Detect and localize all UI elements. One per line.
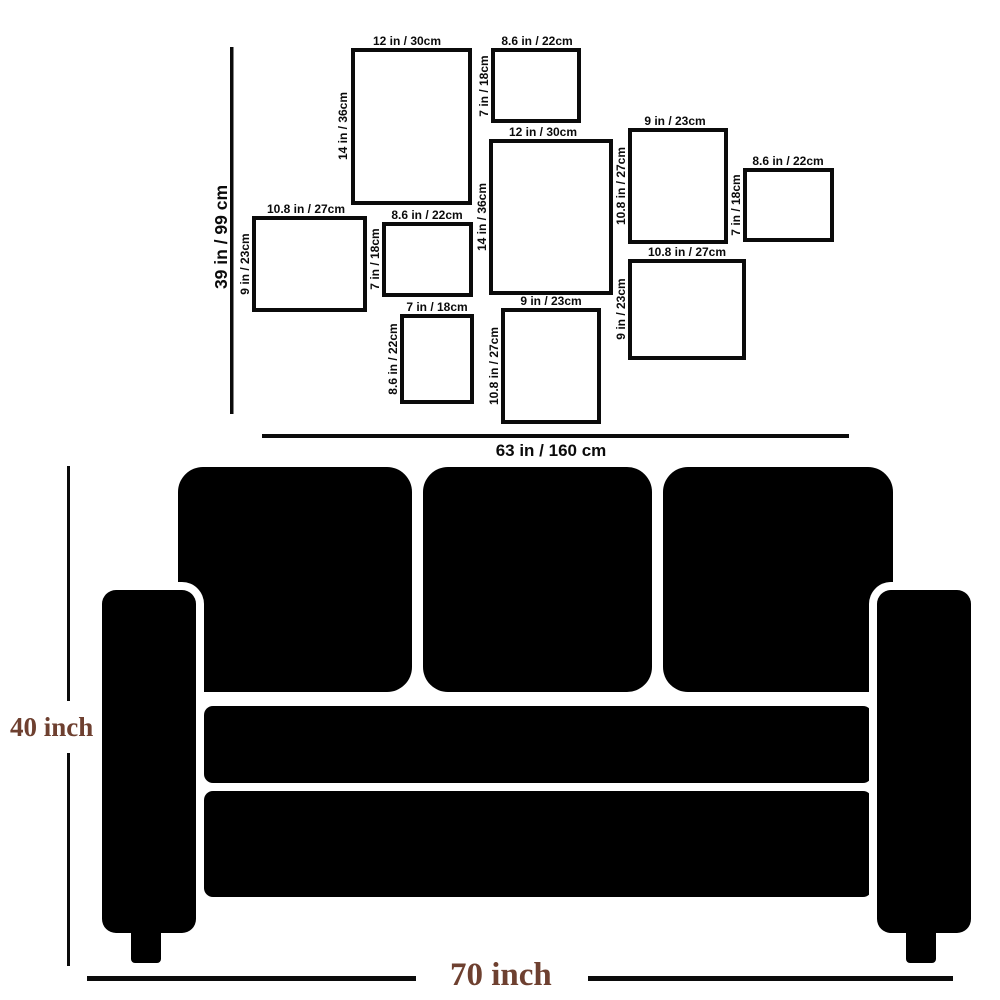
svg-text:7 in / 18cm: 7 in / 18cm [729,174,743,235]
svg-text:8.6 in / 22cm: 8.6 in / 22cm [501,34,572,48]
svg-text:10.8 in / 27cm: 10.8 in / 27cm [487,327,501,405]
svg-text:12 in / 30cm: 12 in / 30cm [509,125,577,139]
svg-text:9 in / 23cm: 9 in / 23cm [520,294,581,308]
svg-text:14 in / 36cm: 14 in / 36cm [475,183,489,251]
svg-text:39 in / 99 cm: 39 in / 99 cm [211,185,231,289]
svg-text:9 in / 23cm: 9 in / 23cm [238,233,252,294]
svg-text:7 in / 18cm: 7 in / 18cm [477,55,491,116]
svg-text:63 in / 160 cm: 63 in / 160 cm [496,441,607,460]
svg-text:8.6 in / 22cm: 8.6 in / 22cm [752,154,823,168]
svg-text:10.8 in / 27cm: 10.8 in / 27cm [267,202,345,216]
svg-text:8.6 in / 22cm: 8.6 in / 22cm [386,323,400,394]
svg-text:7 in / 18cm: 7 in / 18cm [368,228,382,289]
svg-text:9 in / 23cm: 9 in / 23cm [644,114,705,128]
svg-text:8.6 in / 22cm: 8.6 in / 22cm [391,208,462,222]
svg-text:12 in / 30cm: 12 in / 30cm [373,34,441,48]
svg-text:70 inch: 70 inch [450,957,552,993]
svg-text:10.8 in / 27cm: 10.8 in / 27cm [648,245,726,259]
svg-text:40 inch: 40 inch [10,712,93,742]
svg-text:9 in / 23cm: 9 in / 23cm [614,278,628,339]
svg-text:10.8 in / 27cm: 10.8 in / 27cm [614,147,628,225]
svg-text:14 in / 36cm: 14 in / 36cm [336,92,350,160]
svg-text:7 in / 18cm: 7 in / 18cm [406,300,467,314]
